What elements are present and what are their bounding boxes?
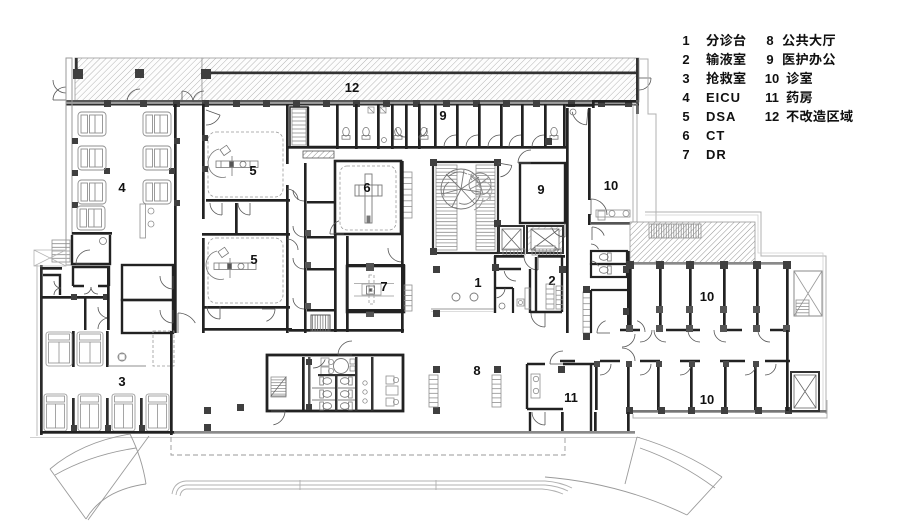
svg-text:5: 5 <box>249 163 256 178</box>
svg-text:10: 10 <box>604 178 618 193</box>
svg-text:10: 10 <box>700 289 714 304</box>
svg-text:5: 5 <box>682 109 689 124</box>
svg-text:2: 2 <box>548 273 555 288</box>
svg-text:11: 11 <box>765 90 779 105</box>
svg-text:7: 7 <box>682 147 689 162</box>
svg-text:2: 2 <box>682 52 689 67</box>
svg-text:6: 6 <box>682 128 689 143</box>
svg-text:10: 10 <box>700 392 714 407</box>
svg-text:9: 9 <box>439 108 446 123</box>
svg-text:CT: CT <box>706 128 725 143</box>
svg-text:3: 3 <box>118 374 125 389</box>
svg-text:EICU: EICU <box>706 90 741 105</box>
svg-text:DSA: DSA <box>706 109 736 124</box>
svg-text:5: 5 <box>250 252 257 267</box>
svg-text:7: 7 <box>380 279 387 294</box>
svg-text:9: 9 <box>766 52 773 67</box>
svg-text:4: 4 <box>682 90 690 105</box>
svg-text:12: 12 <box>345 80 359 95</box>
svg-text:10: 10 <box>765 71 779 86</box>
svg-text:6: 6 <box>363 180 370 195</box>
svg-text:4: 4 <box>118 180 126 195</box>
svg-text:8: 8 <box>473 363 480 378</box>
svg-text:12: 12 <box>765 109 779 124</box>
svg-text:1: 1 <box>474 275 481 290</box>
svg-text:1: 1 <box>682 33 689 48</box>
svg-text:DR: DR <box>706 147 727 162</box>
svg-text:8: 8 <box>766 33 773 48</box>
svg-text:9: 9 <box>537 182 544 197</box>
svg-text:11: 11 <box>564 390 578 405</box>
svg-text:3: 3 <box>682 71 689 86</box>
